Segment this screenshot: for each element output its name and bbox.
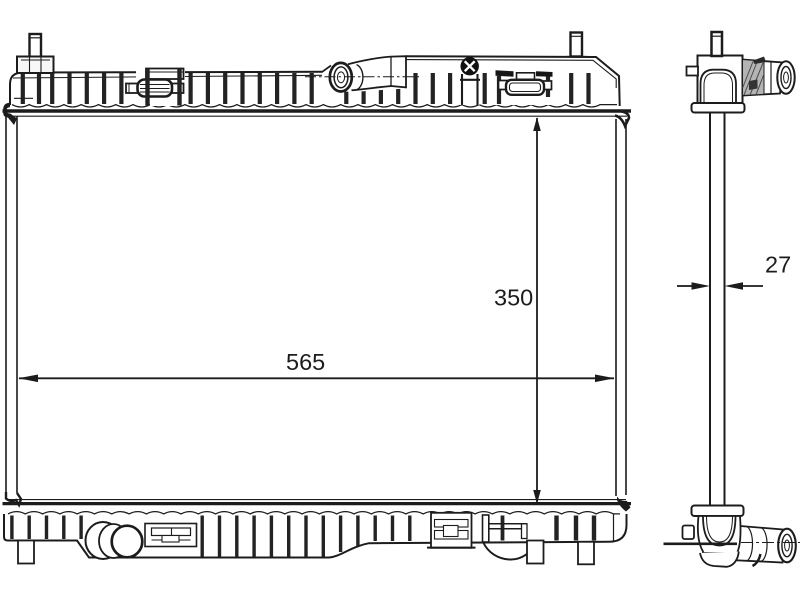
svg-text:350: 350 — [494, 285, 533, 311]
svg-text:27: 27 — [765, 252, 791, 278]
svg-text:565: 565 — [286, 349, 325, 375]
